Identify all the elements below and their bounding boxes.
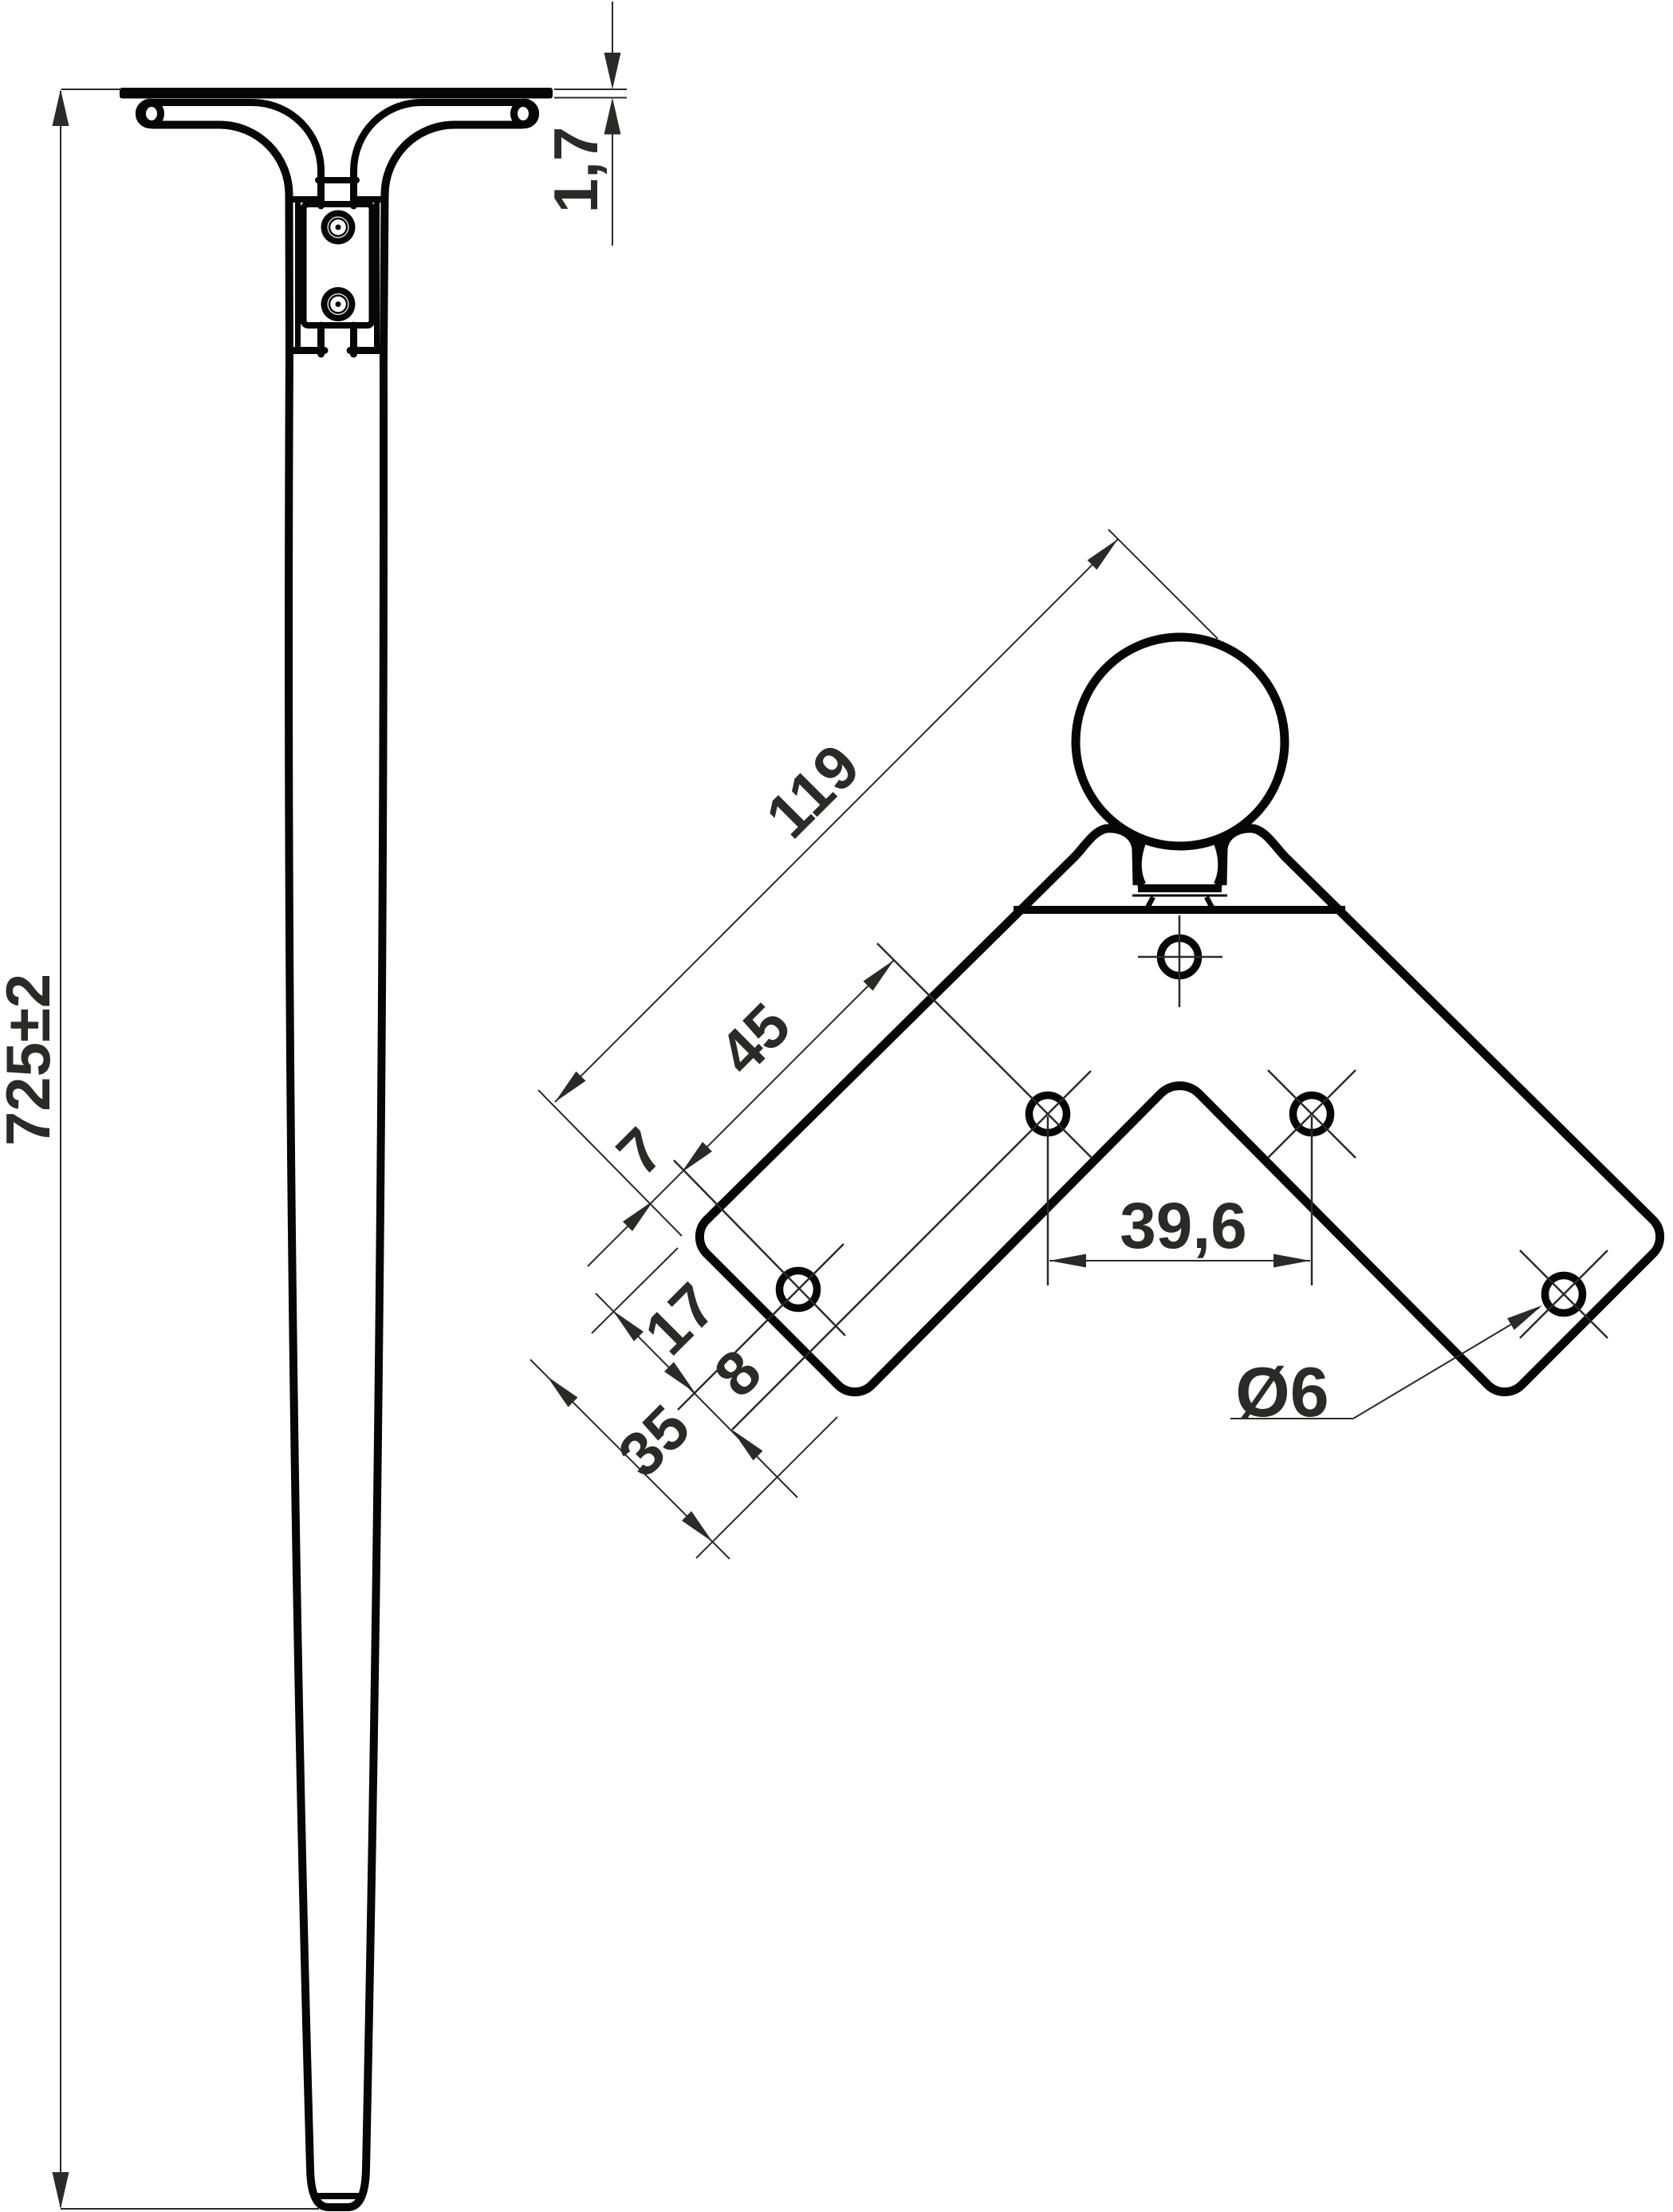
svg-text:39,6: 39,6 [1120,1190,1247,1262]
svg-text:725±2: 725±2 [0,974,63,1146]
svg-text:Ø6: Ø6 [1235,1352,1329,1431]
svg-text:1,7: 1,7 [541,127,611,213]
